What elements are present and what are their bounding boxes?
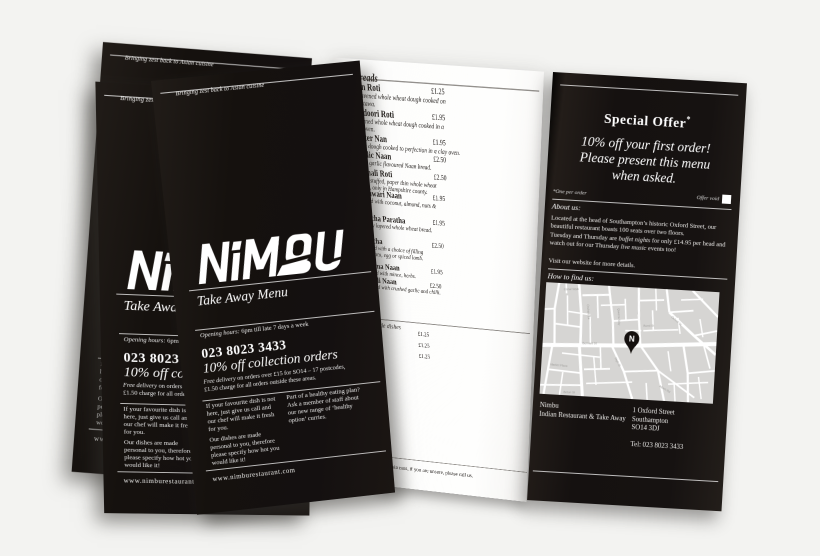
svg-text:Queens Way: Queens Way (617, 308, 622, 326)
svg-text:Bernard St: Bernard St (582, 341, 596, 345)
svg-text:N: N (629, 334, 636, 343)
svg-text:Bond St: Bond St (643, 324, 654, 328)
svg-text:Canal Walk: Canal Walk (564, 287, 580, 291)
svg-text:Briton St: Briton St (564, 390, 576, 394)
